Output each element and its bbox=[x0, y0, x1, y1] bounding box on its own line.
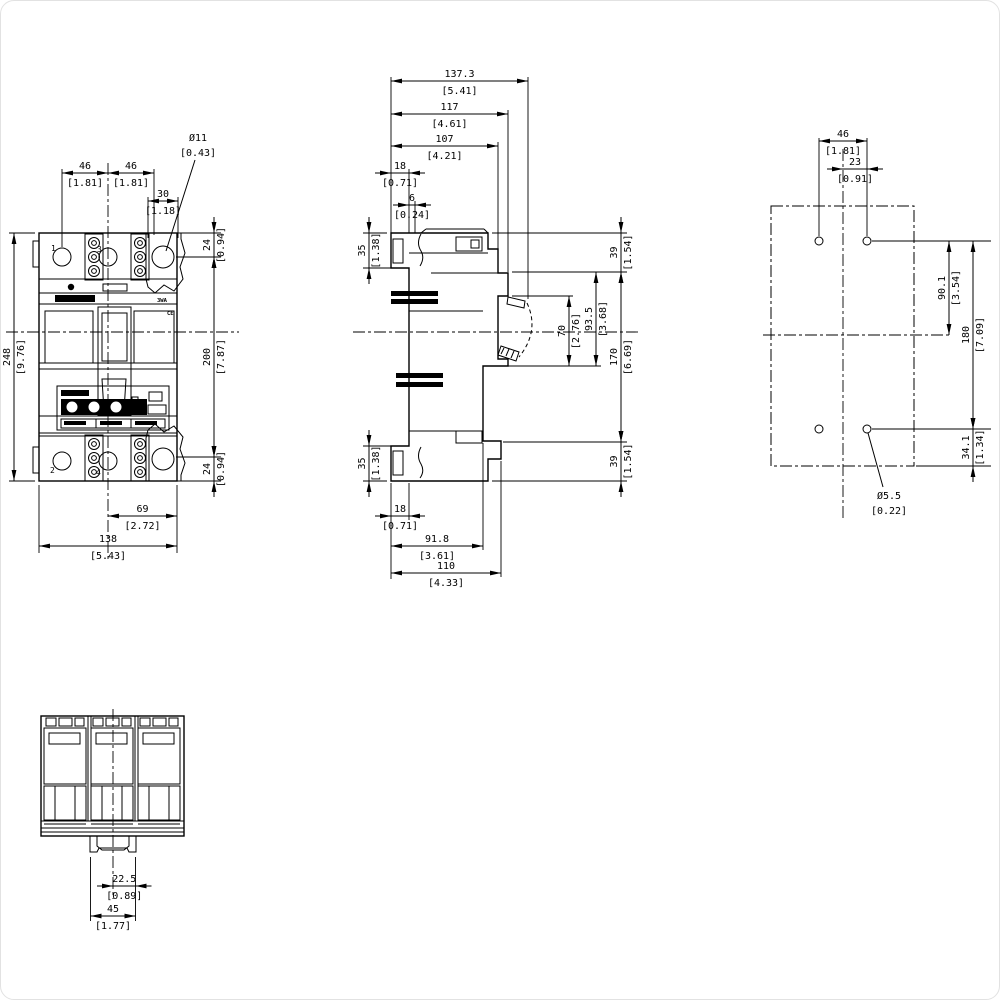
dim-arrow bbox=[856, 139, 867, 144]
dim-text: [1.38] bbox=[371, 232, 382, 268]
cover-screw bbox=[68, 284, 74, 290]
dim-text: 200 bbox=[202, 348, 213, 366]
mounting-hole bbox=[863, 425, 871, 433]
handle-on-position bbox=[507, 297, 525, 308]
adjust-dial bbox=[88, 401, 100, 413]
pole-section bbox=[138, 718, 180, 824]
bottom-body-outline bbox=[41, 716, 184, 836]
dim-arrow bbox=[517, 79, 528, 84]
dim-arrow bbox=[367, 435, 372, 446]
dim-text: 18 bbox=[394, 161, 406, 172]
dim-text: 24 bbox=[202, 239, 213, 251]
dim-text: 39 bbox=[609, 246, 620, 258]
dim-arrow bbox=[166, 514, 177, 519]
dim-arrow bbox=[971, 466, 976, 477]
dim-text: Ø11 bbox=[189, 132, 207, 144]
handle-travel-arc bbox=[519, 303, 532, 357]
dim-arrow bbox=[391, 144, 402, 149]
dim-text: 23 bbox=[849, 157, 861, 168]
break-lines bbox=[419, 234, 423, 478]
dim-text: [0.43] bbox=[180, 148, 216, 159]
rear-bracket-top bbox=[393, 239, 403, 263]
dim-arrow bbox=[108, 514, 119, 519]
dim-text: 248 bbox=[2, 348, 13, 366]
dim-arrow bbox=[391, 544, 402, 549]
dim-arrow bbox=[947, 241, 952, 252]
dim-text: 180 bbox=[961, 326, 972, 344]
dim-arrow bbox=[594, 355, 599, 366]
drill-centerlines bbox=[763, 149, 951, 521]
dim-text: 6 bbox=[409, 193, 415, 204]
dim-text: 18 bbox=[394, 504, 406, 515]
dim-text: [7.09] bbox=[975, 317, 986, 353]
dim-text: [9.76] bbox=[16, 339, 27, 375]
bottom-lug-hole bbox=[152, 448, 174, 470]
dim-arrow bbox=[567, 355, 572, 366]
dim-text: 70 bbox=[557, 325, 568, 337]
top-lug-breakout bbox=[146, 233, 185, 293]
dim-text: 93.5 bbox=[584, 307, 595, 331]
dim-arrow bbox=[497, 112, 508, 117]
dim-arrow bbox=[619, 481, 624, 492]
dim-text: 35 bbox=[357, 457, 368, 469]
engineering-drawing: 1 3 2 4 3WA CE bbox=[1, 1, 999, 999]
dim-text: [0.22] bbox=[871, 506, 907, 517]
pole-section bbox=[44, 718, 86, 824]
terminal-hole-2 bbox=[53, 452, 71, 470]
pole-label-1: 1 bbox=[51, 244, 56, 253]
dim-text: [1.81] bbox=[113, 178, 149, 189]
mounting-hole bbox=[863, 237, 871, 245]
dim-arrow bbox=[472, 544, 483, 549]
rear-busbar-tab bbox=[391, 291, 438, 296]
dim-text: [0.71] bbox=[382, 521, 418, 532]
dim-text: [6.69] bbox=[623, 339, 634, 375]
dim-arrow bbox=[819, 139, 830, 144]
rear-busbar-tab bbox=[391, 299, 438, 304]
dim-arrow bbox=[867, 167, 878, 172]
dim-arrow bbox=[409, 171, 420, 176]
dim-text: Ø5.5 bbox=[877, 490, 901, 502]
dim-text: 110 bbox=[437, 561, 455, 572]
adjust-dial bbox=[66, 401, 78, 413]
dim-arrow bbox=[409, 514, 420, 519]
top-lug-hole bbox=[152, 246, 174, 268]
dim-arrow bbox=[619, 272, 624, 283]
cover-window bbox=[103, 284, 127, 291]
dim-text: [0.91] bbox=[837, 174, 873, 185]
dim-arrow bbox=[367, 268, 372, 279]
dim-arrow bbox=[108, 171, 119, 176]
dim-arrow bbox=[619, 222, 624, 233]
dim-text: [3.54] bbox=[951, 270, 962, 306]
dim-text: [5.43] bbox=[90, 551, 126, 562]
breaker-footprint-outline bbox=[771, 206, 914, 466]
dim-text: 34.1 bbox=[961, 435, 972, 459]
dim-text: [4.33] bbox=[428, 578, 464, 589]
dim-arrow bbox=[62, 171, 73, 176]
dim-text: 35 bbox=[357, 244, 368, 256]
dim-arrow bbox=[39, 544, 50, 549]
ce-mark: CE bbox=[167, 311, 174, 317]
dim-arrow bbox=[832, 167, 843, 172]
dim-text: 107 bbox=[435, 134, 453, 145]
dim-arrow bbox=[971, 418, 976, 429]
toggle-slot bbox=[102, 313, 127, 361]
dim-text: [7.87] bbox=[216, 339, 227, 375]
dim-text: [1.81] bbox=[67, 178, 103, 189]
dim-arrow bbox=[166, 544, 177, 549]
dim-text: 91.8 bbox=[425, 534, 449, 545]
dim-text: 117 bbox=[440, 102, 458, 113]
bottom-terminal-clamp bbox=[456, 431, 482, 443]
dim-arrow bbox=[391, 79, 402, 84]
rear-busbar-tab bbox=[396, 373, 443, 378]
bottom-view bbox=[41, 709, 184, 921]
dim-text: 46 bbox=[125, 161, 137, 172]
dim-arrow bbox=[391, 571, 402, 576]
dim-text: [1.18] bbox=[145, 206, 181, 217]
dim-text: [3.68] bbox=[598, 301, 609, 337]
type-code-block bbox=[149, 392, 162, 401]
dim-text: [1.54] bbox=[623, 443, 634, 479]
pole-section bbox=[91, 718, 133, 824]
adjust-dial bbox=[110, 401, 122, 413]
dim-text: [4.61] bbox=[431, 119, 467, 130]
drawing-sheet: 1 3 2 4 3WA CE bbox=[0, 0, 1000, 1000]
front-mounting-ear bbox=[33, 447, 39, 473]
dim-text: [0.94] bbox=[216, 451, 227, 487]
dim-text: 22.5 bbox=[112, 874, 136, 885]
dim-text: 170 bbox=[609, 348, 620, 366]
dim-text: [1.38] bbox=[371, 445, 382, 481]
dim-arrow bbox=[490, 571, 501, 576]
dim-text: [2.72] bbox=[124, 521, 160, 532]
dim-text: 39 bbox=[609, 455, 620, 467]
dim-text: 137.3 bbox=[444, 69, 474, 80]
side-body-outline bbox=[391, 233, 508, 481]
mounting-hole bbox=[815, 237, 823, 245]
brand-label: 3WA bbox=[157, 298, 168, 304]
drill-extension-lines bbox=[819, 138, 991, 466]
dim-arrow bbox=[12, 233, 17, 244]
dim-text: 46 bbox=[79, 161, 91, 172]
dim-text: 90.1 bbox=[937, 276, 948, 300]
dim-text: [0.94] bbox=[216, 227, 227, 263]
dim-arrow bbox=[971, 241, 976, 252]
dim-text: [1.34] bbox=[975, 429, 986, 465]
dim-arrow bbox=[415, 203, 426, 208]
dim-text: [0.89] bbox=[106, 891, 142, 902]
dim-arrow bbox=[380, 514, 391, 519]
front-left-panel bbox=[45, 311, 93, 363]
dim-arrow bbox=[398, 203, 409, 208]
dim-text: [2.76] bbox=[571, 313, 582, 349]
dim-arrow bbox=[125, 914, 136, 919]
dim-text: [4.21] bbox=[426, 151, 462, 162]
dim-text: 46 bbox=[837, 129, 849, 140]
dim-text: 138 bbox=[99, 534, 117, 545]
dim-text: [1.54] bbox=[623, 234, 634, 270]
dim-arrow bbox=[619, 431, 624, 442]
dim-arrow bbox=[487, 144, 498, 149]
dim-text: [1.81] bbox=[825, 146, 861, 157]
dim-text: 24 bbox=[202, 463, 213, 475]
rear-bracket-bottom bbox=[393, 451, 403, 475]
label-strip bbox=[55, 295, 95, 302]
mounting-hole bbox=[815, 425, 823, 433]
dim-text: 69 bbox=[136, 504, 148, 515]
dim-arrow bbox=[380, 171, 391, 176]
front-right-panel bbox=[134, 311, 174, 363]
pole-label-4: 4 bbox=[96, 468, 101, 477]
dim-arrow bbox=[12, 470, 17, 481]
dim-text: [5.41] bbox=[441, 86, 477, 97]
top-clamp-screw bbox=[471, 240, 479, 248]
dim-arrow bbox=[91, 914, 102, 919]
dim-text: [1.77] bbox=[95, 921, 131, 932]
dim-arrow bbox=[594, 272, 599, 283]
dim-arrow bbox=[136, 884, 147, 889]
top-terminal-clamp bbox=[456, 237, 482, 251]
front-mounting-ear bbox=[33, 241, 39, 267]
pole-label-3: 3 bbox=[97, 245, 102, 254]
dim-arrow bbox=[947, 324, 952, 335]
pole-label-2: 2 bbox=[50, 466, 55, 475]
terminal-clamp-tower bbox=[85, 234, 103, 280]
dim-arrow bbox=[391, 112, 402, 117]
dimension-annotations: 46[1.81]46[1.81]30[1.18]Ø11[0.43]24[0.94… bbox=[2, 69, 986, 932]
dim-arrow bbox=[97, 171, 108, 176]
dim-text: [0.71] bbox=[382, 178, 418, 189]
dim-text: [0.24] bbox=[394, 210, 430, 221]
dim-arrow bbox=[143, 171, 154, 176]
dim-arrow bbox=[367, 481, 372, 492]
dim-text: 30 bbox=[157, 189, 169, 200]
dim-line bbox=[868, 433, 883, 487]
rating-plate bbox=[57, 386, 169, 430]
connector-icon bbox=[148, 405, 166, 414]
dim-text: 45 bbox=[107, 904, 119, 915]
dim-arrow bbox=[367, 222, 372, 233]
rear-busbar-tab bbox=[396, 382, 443, 387]
dim-arrow bbox=[567, 296, 572, 307]
